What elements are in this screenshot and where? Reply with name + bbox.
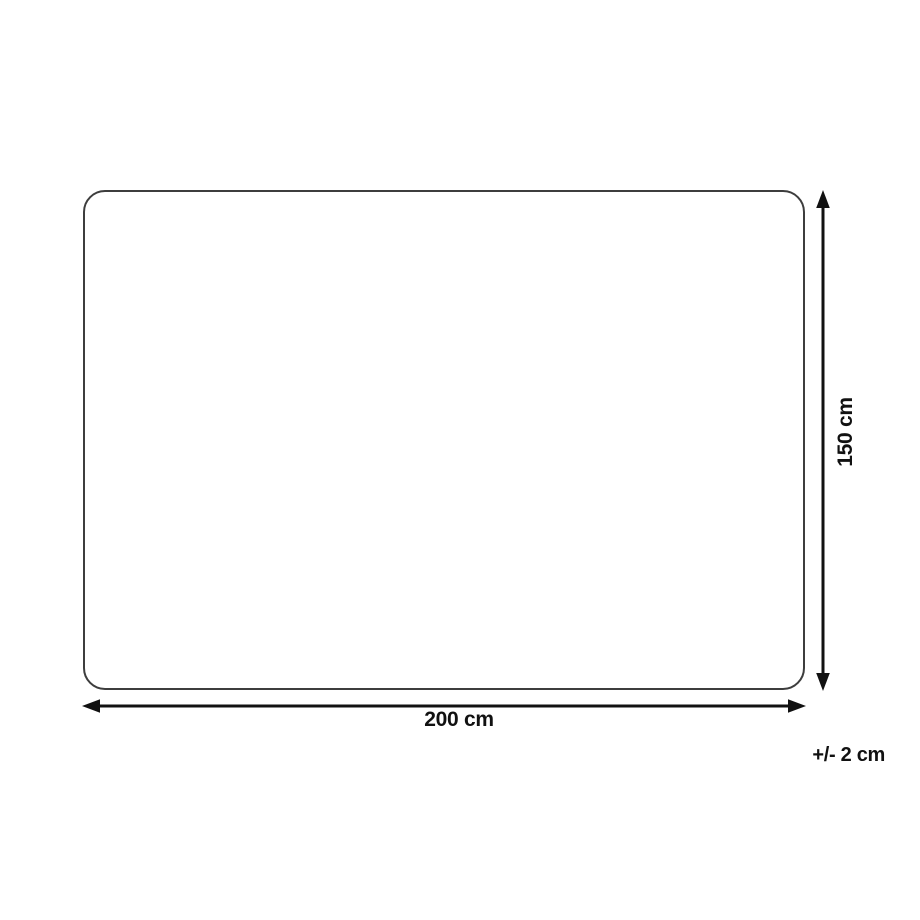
width-arrow-head-right-icon (788, 699, 806, 713)
height-dimension-arrow (816, 190, 830, 691)
dimension-diagram: 200 cm 150 cm +/- 2 cm (0, 0, 920, 920)
height-arrow-head-up-icon (816, 190, 830, 208)
width-arrow-head-left-icon (82, 699, 100, 713)
tolerance-label: +/- 2 cm (745, 744, 885, 767)
height-label: 150 cm (834, 372, 858, 492)
dimension-arrows (0, 0, 920, 920)
height-arrow-head-down-icon (816, 673, 830, 691)
width-label: 200 cm (379, 708, 539, 732)
